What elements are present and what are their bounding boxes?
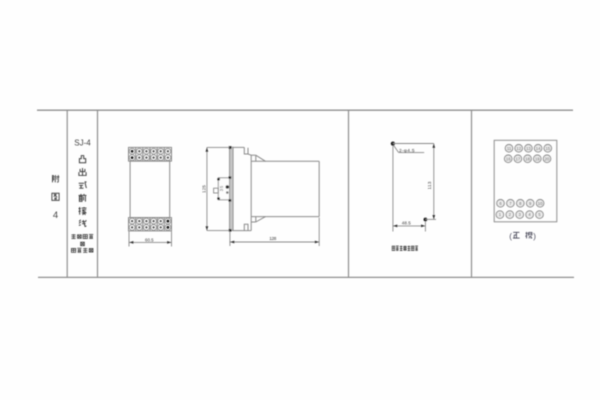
svg-text:): ) bbox=[533, 232, 536, 241]
svg-text:48.5: 48.5 bbox=[402, 221, 411, 226]
svg-text:19: 19 bbox=[535, 156, 540, 161]
svg-text:4: 4 bbox=[53, 210, 58, 221]
svg-text:16: 16 bbox=[506, 156, 511, 161]
svg-text:12: 12 bbox=[516, 146, 521, 151]
svg-text:2-φ4.5: 2-φ4.5 bbox=[399, 148, 415, 154]
svg-text:17: 17 bbox=[516, 156, 521, 161]
svg-text:11: 11 bbox=[507, 146, 512, 151]
svg-text:14: 14 bbox=[536, 146, 541, 151]
svg-text:35: 35 bbox=[219, 185, 224, 191]
svg-text:SJ-4: SJ-4 bbox=[74, 139, 91, 148]
svg-text:13: 13 bbox=[526, 146, 531, 151]
svg-text:10: 10 bbox=[538, 201, 543, 206]
svg-text:(: ( bbox=[509, 232, 512, 241]
svg-text:20: 20 bbox=[545, 156, 550, 161]
svg-text:125: 125 bbox=[202, 185, 207, 193]
svg-text:18: 18 bbox=[525, 156, 530, 161]
svg-text:60.5: 60.5 bbox=[145, 237, 154, 242]
svg-text:128: 128 bbox=[269, 236, 276, 241]
svg-text:113: 113 bbox=[427, 181, 432, 189]
svg-text:15: 15 bbox=[545, 146, 550, 151]
